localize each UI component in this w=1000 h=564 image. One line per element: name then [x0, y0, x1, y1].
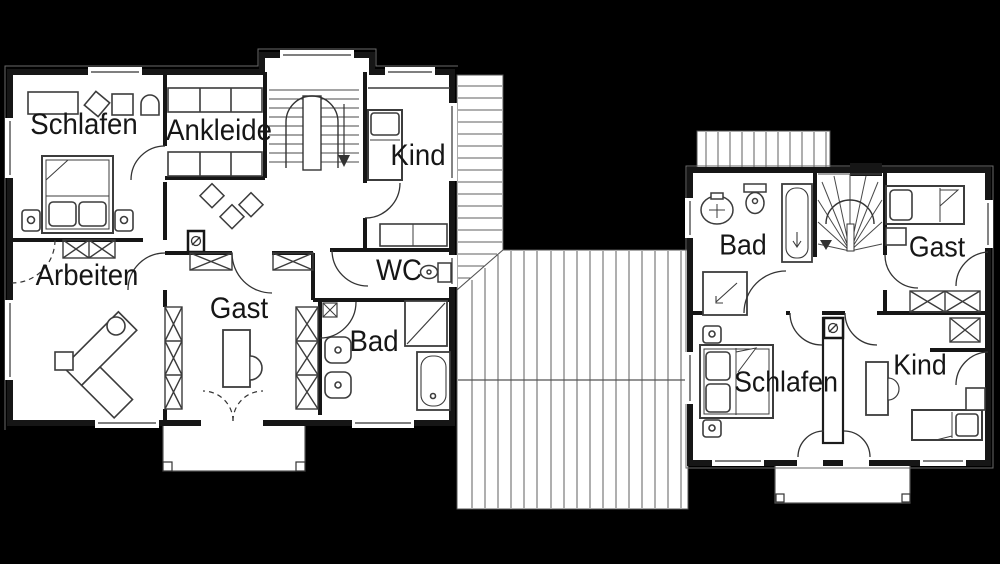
room-label-bad-right: Bad	[719, 231, 766, 260]
pillow	[49, 202, 76, 226]
pillow	[79, 202, 106, 226]
pillow	[706, 352, 730, 380]
floor-plan-canvas: Schlafen Ankleide Kind Arbeiten Gast WC …	[0, 0, 1000, 564]
left-balcony	[163, 423, 305, 471]
room-label-gast-left: Gast	[210, 294, 268, 324]
chimney-right	[824, 318, 843, 338]
toilet-tank	[438, 263, 451, 282]
room-label-gast-right: Gast	[909, 233, 965, 262]
pillow	[371, 113, 399, 135]
toilet-tank	[744, 184, 766, 192]
room-label-bad-left: Bad	[349, 327, 398, 357]
pillow	[890, 190, 912, 220]
terrace-door-opening	[201, 417, 263, 428]
pillow	[956, 414, 978, 436]
chimney-left	[188, 231, 204, 252]
right-building	[685, 163, 993, 503]
dresser	[966, 388, 985, 410]
room-label-schlafen-left: Schlafen	[30, 110, 137, 140]
nightstand	[886, 228, 906, 245]
pillow	[706, 384, 730, 412]
right-terrace	[775, 461, 910, 503]
room-label-ankleide: Ankleide	[166, 116, 272, 146]
room-label-kind-right: Kind	[893, 351, 946, 380]
floor-plan-drawing	[0, 0, 1000, 564]
room-label-wc: WC	[376, 256, 422, 286]
room-label-schlafen-right: Schlafen	[734, 368, 838, 397]
room-label-kind-left: Kind	[390, 141, 445, 171]
basin-item	[141, 95, 159, 115]
terrace-door-opening	[797, 456, 823, 467]
desk	[866, 362, 888, 415]
desk	[223, 330, 250, 387]
roof-middle-carport	[457, 250, 688, 509]
chair	[107, 317, 125, 335]
roof-north-of-right-building	[697, 131, 830, 171]
terrace-door-opening	[843, 456, 869, 467]
room-label-arbeiten: Arbeiten	[36, 261, 139, 291]
